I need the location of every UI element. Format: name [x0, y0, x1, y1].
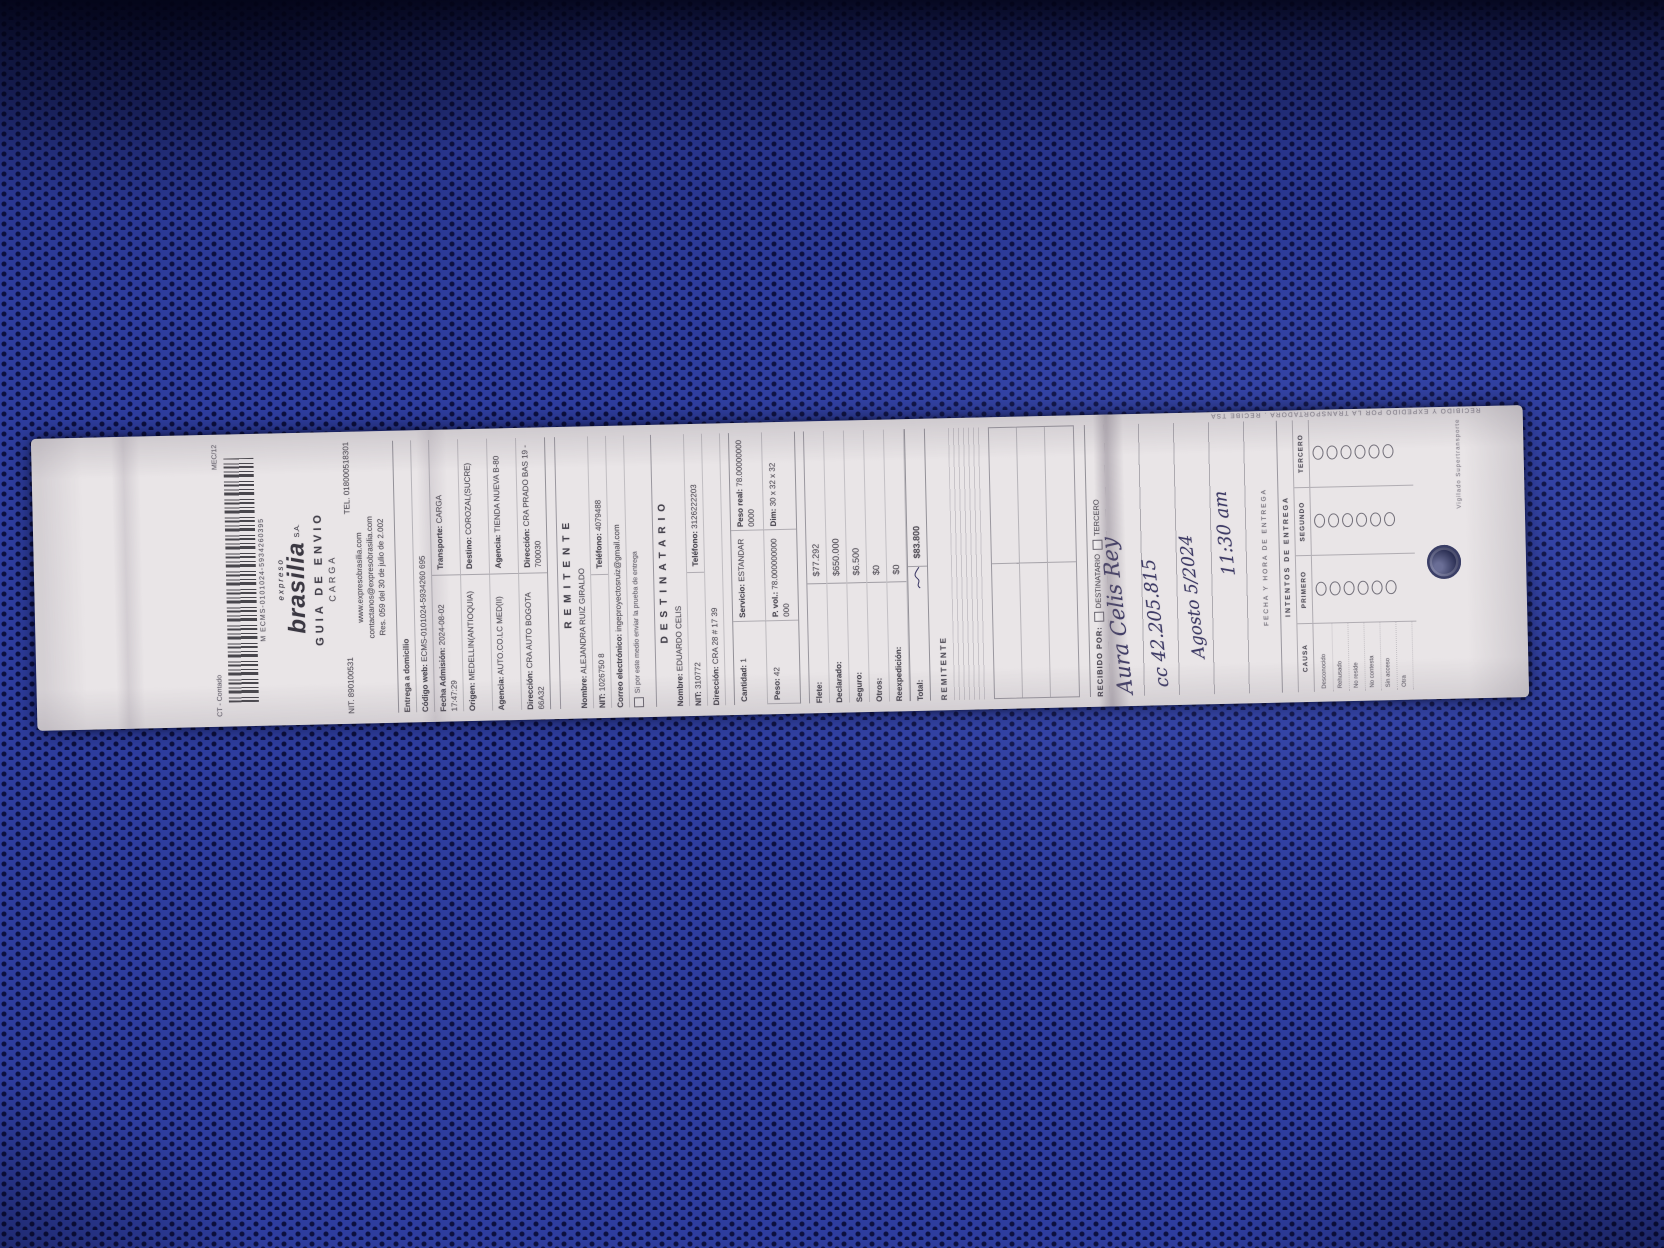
globe-stamp-icon	[1427, 545, 1462, 580]
admission-field: Origen: MEDELLIN(ANTIOQUIA)	[461, 575, 493, 712]
attempt-bubble-icon	[1384, 513, 1395, 527]
attempt-bubble-icon	[1315, 582, 1326, 596]
vigilado-note: Vigilado Supertransporte	[1453, 418, 1466, 508]
signature-cell	[992, 563, 1023, 699]
attempt-bubble-icon	[1328, 514, 1339, 528]
option-tercero: TERCERO	[1091, 499, 1103, 536]
handwritten-delivery-date: Agosto 5/2024	[1181, 535, 1206, 659]
admission-section: Entrega a domicilio Código web: ECMS-010…	[392, 437, 551, 712]
admission-field: Destino: COROZAL(SUCRE)	[458, 439, 490, 576]
package-field: P. vol.: 78.000000000000	[764, 530, 798, 621]
attempt-bubble-icon	[1357, 581, 1368, 595]
cause-column: CAUSA Desconocido Rehusado No reside No …	[1297, 622, 1418, 693]
brand-name-text: brasilia	[282, 541, 311, 634]
received-by-section: RECIBIDO POR: DESTINATARIO TERCERO Aura …	[1084, 421, 1274, 697]
waybill-content: CT - Contado MEC/12 M ECMS-0101024-59342…	[31, 405, 1529, 731]
sender-phone: Teléfono: 4079488	[588, 436, 608, 576]
admission-field: Fecha Admisión: 2024-08-02 17:47:29	[432, 575, 464, 712]
handwritten-receiver-id: cc 42.205.815	[1143, 559, 1168, 687]
barcode	[223, 458, 259, 703]
package-field: Servicio: ESTANDAR	[731, 531, 766, 622]
handwriting-area: Aura Celis Rey cc 42.205.815 Agosto 5/20…	[1104, 421, 1260, 696]
cause-item: No contesta	[1364, 622, 1382, 690]
received-by-title: RECIBIDO POR:	[1093, 626, 1106, 697]
payment-code: CT - Contado	[214, 675, 226, 717]
form-code: MEC/12	[209, 445, 221, 471]
charges-section: Flete: $77.292 Declarado: $650.000 Segur…	[803, 429, 931, 704]
package-grid: Cantidad: 1 Servicio: ESTANDAR Peso real…	[729, 432, 800, 705]
attempt-bubble-icon	[1371, 581, 1382, 595]
shipping-waybill: CT - Contado MEC/12 M ECMS-0101024-59342…	[31, 405, 1529, 731]
photo-background: CT - Contado MEC/12 M ECMS-0101024-59342…	[0, 0, 1664, 1248]
attempt-bubble-icon	[1340, 446, 1351, 460]
attempt-bubble-icon	[1356, 513, 1367, 527]
attempt-bubble-icon	[1329, 582, 1340, 596]
web-code-value: ECMS-0101024-5934260 695	[418, 555, 429, 661]
admission-field: Dirección: CRA PRADO BAS 19 - 700030	[516, 437, 547, 574]
recipient-id: NIT: 310772	[687, 573, 707, 706]
attempt-bubble-icon	[1370, 513, 1381, 527]
checkbox-destinatario-icon	[1094, 612, 1104, 622]
web-code-label: Código web:	[420, 664, 430, 712]
handwritten-scribble-icon	[913, 566, 924, 589]
checkbox-icon	[633, 697, 643, 707]
recipient-phone: Teléfono: 3126222203	[684, 434, 704, 574]
cause-title: CAUSA	[1299, 624, 1315, 692]
package-field: Cantidad: 1	[733, 621, 768, 705]
package-field: Dim: 30 x 32 x 32	[762, 432, 796, 531]
cause-item: No reside	[1348, 623, 1366, 691]
footer-row: Vigilado Supertransporte	[1418, 416, 1476, 689]
signature-cell	[989, 428, 1020, 564]
admission-field: Agencia: AUTO.CO.LC MED(II)	[490, 574, 522, 711]
company-phone: TEL. 018000518301	[340, 442, 353, 515]
admission-field: Dirección: CRA AUTO BOGOTA 66A32	[519, 573, 550, 710]
attempt-column-primero: PRIMERO	[1296, 554, 1417, 625]
package-field: Peso real: 78.000000000000	[729, 432, 764, 531]
cause-item: Otra	[1396, 622, 1414, 690]
sender-signature-label: REMITENTE	[933, 428, 950, 700]
handwritten-delivery-time: 11:30 am	[1215, 491, 1235, 576]
company-nit: NIT. 890100531	[345, 657, 357, 714]
admission-grid: Fecha Admisión: 2024-08-02 17:47:29 Tran…	[429, 437, 550, 712]
attempt-bubble-icon	[1382, 445, 1393, 459]
attempt-bubble-icon	[1354, 445, 1365, 459]
attempts-grid: CAUSA Desconocido Rehusado No reside No …	[1292, 418, 1418, 693]
signature-cell	[1020, 562, 1051, 698]
attempt-bubble-icon	[1343, 581, 1354, 595]
attempt-bubble-icon	[1368, 445, 1379, 459]
cause-item: Sin acceso	[1380, 622, 1398, 690]
signature-cell	[1048, 561, 1079, 697]
cause-item: Rehusado	[1332, 623, 1350, 691]
admission-field: Agencia: TIENDA NUEVA B-80	[487, 438, 519, 575]
paper-blank-margin	[31, 445, 215, 721]
delivery-attempts-section: INTENTOS DE ENTREGA CAUSA Desconocido Re…	[1276, 418, 1418, 693]
attempt-bubble-icon	[1314, 514, 1325, 528]
attempt-bubble-icon	[1312, 446, 1323, 460]
attempt-bubble-icon	[1326, 446, 1337, 460]
attempt-bubble-icon	[1385, 581, 1396, 595]
signature-cell	[1045, 426, 1076, 562]
admission-field: Transporte: CARGA	[429, 439, 461, 576]
attempt-column-tercero: TERCERO	[1293, 418, 1414, 489]
signature-cell	[1017, 427, 1048, 563]
package-section: Cantidad: 1 Servicio: ESTANDAR Peso real…	[728, 432, 801, 705]
attempt-column-segundo: SEGUNDO	[1294, 486, 1415, 557]
package-field: Peso: 42	[766, 620, 800, 704]
brand-logo: expreso brasilia S.A.	[272, 443, 311, 716]
cause-item: Desconocido	[1316, 623, 1334, 691]
brand-suffix-text: S.A.	[294, 524, 301, 537]
attempt-bubble-icon	[1342, 513, 1353, 527]
terms-fine-print	[948, 427, 988, 700]
handwritten-receiver-name: Aura Celis Rey	[1104, 537, 1132, 694]
sender-id: NIT: 1026750 8	[591, 575, 611, 708]
signature-stamp-grid	[988, 425, 1080, 699]
delivery-datetime-caption: FECHA Y HORA DE ENTREGA	[1257, 421, 1274, 693]
